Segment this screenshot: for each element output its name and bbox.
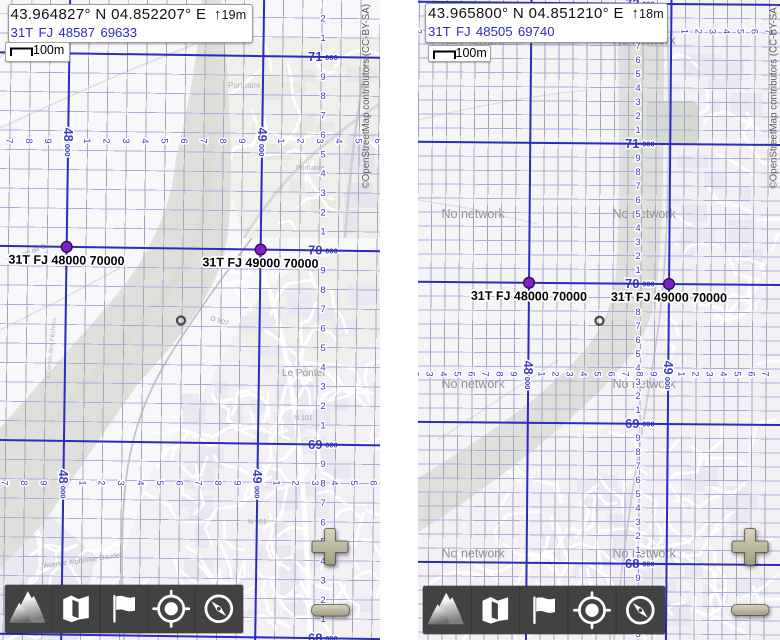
svg-text:6: 6 [368,480,379,485]
svg-text:3: 3 [708,29,719,34]
svg-text:7: 7 [0,480,11,485]
svg-text:9: 9 [635,433,640,444]
svg-text:1: 1 [635,125,640,136]
svg-text:2: 2 [418,371,422,376]
svg-text:4: 4 [320,362,326,373]
svg-text:5: 5 [635,69,640,80]
svg-text:9: 9 [320,266,325,277]
svg-text:1: 1 [677,371,688,376]
svg-text:8: 8 [495,371,506,376]
svg-text:31T FJ 49000 70000: 31T FJ 49000 70000 [611,290,727,305]
svg-text:2: 2 [295,138,306,143]
svg-text:4: 4 [635,83,641,94]
svg-text:8: 8 [213,480,224,485]
svg-text:3: 3 [425,371,436,376]
svg-text:1: 1 [635,545,640,556]
svg-text:8: 8 [635,167,640,178]
svg-text:4: 4 [635,223,641,234]
svg-text:7: 7 [320,111,325,122]
svg-text:2: 2 [635,531,640,542]
svg-text:5: 5 [635,349,640,360]
svg-text:2: 2 [635,251,640,262]
svg-text:3: 3 [320,188,325,199]
svg-text:1: 1 [320,227,325,238]
svg-text:8: 8 [635,307,640,318]
svg-text:8: 8 [320,91,325,102]
svg-text:2: 2 [320,207,325,218]
svg-text:4: 4 [320,169,326,180]
svg-text:3: 3 [315,138,326,143]
svg-text:9: 9 [635,573,640,584]
svg-text:6: 6 [635,195,640,206]
svg-text:3: 3 [635,377,640,388]
svg-text:1: 1 [320,33,325,44]
svg-text:Portuaire: Portuaire [228,81,261,90]
svg-text:3: 3 [320,382,325,393]
svg-text:7: 7 [198,138,209,143]
svg-text:8: 8 [320,285,325,296]
svg-text:6: 6 [174,480,185,485]
svg-text:3: 3 [565,371,576,376]
svg-text:5: 5 [635,489,640,500]
svg-text:9: 9 [509,371,520,376]
svg-text:1: 1 [271,480,282,485]
svg-text:3: 3 [320,575,325,586]
svg-text:5: 5 [160,138,171,143]
svg-text:2: 2 [694,29,705,34]
svg-text:1: 1 [680,29,691,34]
svg-text:9: 9 [43,138,54,143]
svg-text:9: 9 [233,480,244,485]
svg-text:7: 7 [621,371,632,376]
svg-text:2: 2 [320,401,325,412]
svg-text:4: 4 [330,480,341,485]
svg-text:©OpenStreetMap contributors (C: ©OpenStreetMap contributors (CC-BY-SA) [769,4,780,189]
svg-text:5: 5 [320,149,325,160]
svg-text:5: 5 [453,371,464,376]
svg-text:2: 2 [635,111,640,122]
svg-text:31T FJ 48000 70000: 31T FJ 48000 70000 [8,253,124,269]
svg-text:6: 6 [747,371,758,376]
svg-text:9: 9 [320,459,325,470]
svg-text:3: 3 [635,517,640,528]
svg-text:1: 1 [82,138,93,143]
svg-text:5: 5 [349,480,360,485]
svg-text:1: 1 [77,480,88,485]
svg-text:5: 5 [733,371,744,376]
svg-text:7: 7 [4,138,15,143]
svg-text:5: 5 [320,343,325,354]
svg-text:4: 4 [635,503,641,514]
svg-text:4: 4 [140,138,151,143]
svg-text:8: 8 [635,447,640,458]
svg-text:2: 2 [418,29,425,34]
svg-text:1: 1 [635,265,640,276]
svg-text:©OpenStreetMap contributors (C: ©OpenStreetMap contributors (CC-BY-SA) [361,4,372,189]
svg-text:4: 4 [719,371,730,376]
svg-text:6: 6 [750,29,761,34]
svg-text:4: 4 [722,29,733,34]
svg-text:1: 1 [635,405,640,416]
svg-text:9: 9 [39,480,50,485]
svg-text:8: 8 [19,480,30,485]
svg-text:7: 7 [320,304,325,315]
svg-text:No network: No network [442,377,506,391]
svg-text:9: 9 [635,153,640,164]
svg-text:7: 7 [761,371,772,376]
svg-text:2: 2 [551,371,562,376]
svg-text:3: 3 [116,480,127,485]
svg-text:7: 7 [635,461,640,472]
svg-text:6: 6 [320,324,325,335]
svg-text:1: 1 [537,371,548,376]
svg-text:2: 2 [635,391,640,402]
svg-text:8: 8 [635,371,646,376]
svg-text:3: 3 [310,480,321,485]
svg-text:31T FJ 48000 70000: 31T FJ 48000 70000 [471,289,587,304]
svg-text:5: 5 [736,29,747,34]
svg-text:1: 1 [320,420,325,431]
svg-text:1: 1 [276,138,287,143]
svg-text:6: 6 [607,371,618,376]
svg-text:6: 6 [635,335,640,346]
svg-text:3: 3 [635,237,640,248]
svg-text:6: 6 [373,138,380,143]
svg-text:2: 2 [320,14,325,25]
svg-text:3: 3 [121,138,132,143]
svg-text:7: 7 [320,498,325,509]
svg-text:6: 6 [635,55,640,66]
svg-text:7: 7 [481,371,492,376]
svg-text:2: 2 [291,480,302,485]
svg-text:6: 6 [179,138,190,143]
svg-text:31T FJ 49000 70000: 31T FJ 49000 70000 [202,255,318,271]
svg-text:2: 2 [97,480,108,485]
svg-text:7: 7 [635,181,640,192]
svg-text:2: 2 [691,371,702,376]
svg-text:Le Pontet: Le Pontet [282,368,325,379]
svg-text:6: 6 [635,475,640,486]
svg-text:8: 8 [24,138,35,143]
svg-text:4: 4 [579,371,590,376]
svg-text:7: 7 [635,321,640,332]
svg-text:9: 9 [237,138,248,143]
svg-text:5: 5 [635,209,640,220]
svg-text:4: 4 [439,371,450,376]
svg-text:3: 3 [705,371,716,376]
svg-text:7: 7 [194,480,205,485]
svg-text:5: 5 [593,371,604,376]
svg-text:4: 4 [334,138,345,143]
svg-text:9: 9 [320,72,325,83]
svg-text:9: 9 [649,371,660,376]
svg-text:5: 5 [155,480,166,485]
svg-text:2: 2 [101,138,112,143]
svg-text:6: 6 [467,371,478,376]
svg-text:3: 3 [635,97,640,108]
svg-text:8: 8 [218,138,229,143]
svg-text:4: 4 [136,480,147,485]
